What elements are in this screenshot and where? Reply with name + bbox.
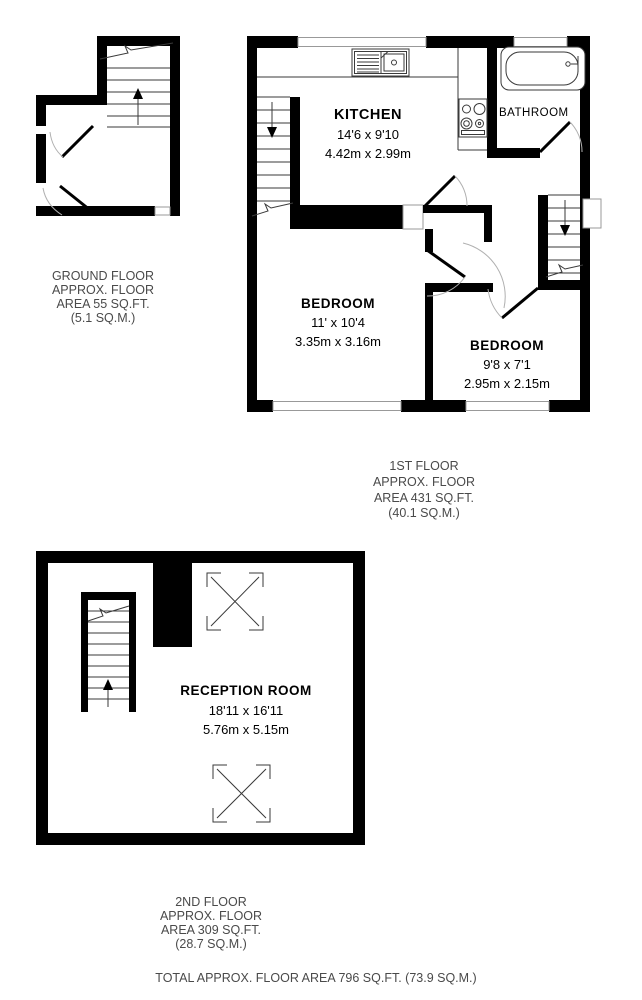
ff-stair-left-shaft-wall — [290, 97, 300, 209]
gf-label-line2: APPROX. FLOOR — [52, 283, 154, 297]
reception-label: RECEPTION ROOM 18'11 x 16'11 5.76m x 5.1… — [180, 683, 312, 737]
sf-bottom-wall — [36, 833, 365, 845]
ff-label-line3: AREA 431 SQ.FT. — [374, 491, 474, 505]
gf-inner-door — [50, 126, 93, 157]
kitchen-sink — [352, 49, 409, 76]
gf-hall-top-wall — [36, 95, 107, 105]
bedroom2-name: BEDROOM — [470, 338, 544, 353]
reception-dims-ft: 18'11 x 16'11 — [209, 703, 284, 718]
ff-staircase-down-right — [546, 195, 583, 277]
sf-label-line4: (28.7 SQ.M.) — [175, 937, 247, 951]
bedroom1-name: BEDROOM — [301, 296, 375, 311]
ff-kitchen-window — [298, 38, 426, 47]
gf-label-line4: (5.1 SQ.M.) — [71, 311, 136, 325]
ff-bedroom-divider-wall — [425, 283, 433, 402]
sf-top-wall — [36, 551, 365, 563]
sf-staircase-up — [81, 592, 136, 712]
bathtub — [501, 47, 585, 90]
gf-shaft-top-wall — [97, 36, 180, 46]
skylight-top-icon — [207, 573, 263, 630]
reception-name: RECEPTION ROOM — [180, 683, 312, 698]
ff-left-wall — [247, 36, 257, 412]
bedroom2-door — [463, 243, 538, 318]
kitchen-name: KITCHEN — [334, 107, 402, 123]
bedroom2-dims-ft: 9'8 x 7'1 — [483, 357, 531, 372]
kitchen-hob — [459, 99, 487, 137]
ff-side-window — [583, 199, 601, 228]
kitchen-dims-m: 4.42m x 2.99m — [325, 146, 411, 161]
bedroom2-label: BEDROOM 9'8 x 7'1 2.95m x 2.15m — [464, 338, 550, 391]
ground-floor-label: GROUND FLOOR APPROX. FLOOR AREA 55 SQ.FT… — [52, 269, 154, 325]
floorplan-drawing: GROUND FLOOR APPROX. FLOOR AREA 55 SQ.FT… — [0, 0, 642, 1000]
sf-chimney-block — [153, 551, 192, 647]
gf-staircase-up — [100, 43, 173, 127]
first-floor-label: 1ST FLOOR APPROX. FLOOR AREA 431 SQ.FT. … — [373, 459, 475, 520]
gf-right-wall — [170, 36, 180, 216]
gf-shaft-left-wall — [97, 36, 107, 97]
reception-dims-m: 5.76m x 5.15m — [203, 722, 289, 737]
skylight-bottom-icon — [213, 765, 270, 822]
ff-bathroom-window — [514, 38, 567, 47]
bathroom-door — [540, 122, 582, 152]
sf-label-line1: 2ND FLOOR — [175, 895, 247, 909]
ff-bathroom-bottom-wall — [487, 148, 540, 158]
sf-label-line3: AREA 309 SQ.FT. — [161, 923, 261, 937]
total-area-label: TOTAL APPROX. FLOOR AREA 796 SQ.FT. (73.… — [155, 971, 476, 985]
sf-up-arrow — [103, 679, 113, 690]
gf-label-line3: AREA 55 SQ.FT. — [56, 297, 149, 311]
gf-left-wall-upper — [36, 95, 46, 126]
gf-up-arrow — [133, 88, 143, 99]
ff-label-line2: APPROX. FLOOR — [373, 475, 475, 489]
ground-floor-plan — [36, 36, 180, 216]
ff-bottom-wall-seg2 — [401, 400, 466, 412]
ff-bedroom1-window — [273, 402, 401, 411]
bedroom1-label: BEDROOM 11' x 10'4 3.35m x 3.16m — [295, 296, 381, 349]
ff-bathroom-left-wall — [487, 46, 497, 156]
ff-bedroom1-east-stub — [425, 229, 433, 252]
bathroom-name: BATHROOM — [499, 107, 569, 119]
second-floor-plan: RECEPTION ROOM 18'11 x 16'11 5.76m x 5.1… — [36, 551, 365, 845]
gf-label-line1: GROUND FLOOR — [52, 269, 154, 283]
ff-hall-north-wall — [423, 205, 492, 213]
ff-label-line4: (40.1 SQ.M.) — [388, 506, 460, 520]
bedroom1-dims-m: 3.35m x 3.16m — [295, 334, 381, 349]
kitchen-dims-ft: 14'6 x 9'10 — [337, 127, 399, 142]
ff-staircase-down-left — [252, 97, 293, 216]
ff-bedroom2-window — [466, 402, 549, 411]
ff-stair2-left-wall — [538, 195, 548, 290]
bedroom1-dims-ft: 11' x 10'4 — [311, 315, 365, 330]
gf-left-wall-mid — [36, 134, 46, 183]
ff-kitchen-bedroom-wall — [290, 205, 403, 229]
ff-top-wall-seg2 — [426, 36, 514, 48]
second-floor-label: 2ND FLOOR APPROX. FLOOR AREA 309 SQ.FT. … — [160, 895, 262, 951]
floorplan-page: GROUND FLOOR APPROX. FLOOR AREA 55 SQ.FT… — [0, 0, 642, 1000]
gf-bottom-opening — [155, 207, 170, 215]
bedroom2-dims-m: 2.95m x 2.15m — [464, 376, 550, 391]
sf-label-line2: APPROX. FLOOR — [160, 909, 262, 923]
ff-hall-east-wall — [484, 205, 492, 242]
first-floor-plan: KITCHEN 14'6 x 9'10 4.42m x 2.99m BATHRO… — [247, 36, 601, 412]
sf-left-wall — [36, 551, 48, 845]
kitchen-label: KITCHEN 14'6 x 9'10 4.42m x 2.99m — [325, 107, 411, 161]
ff-label-line1: 1ST FLOOR — [389, 459, 458, 473]
ff-door-threshold — [403, 205, 423, 229]
gf-bottom-wall — [36, 206, 155, 216]
kitchen-door — [425, 176, 467, 206]
sf-right-wall — [353, 551, 365, 845]
